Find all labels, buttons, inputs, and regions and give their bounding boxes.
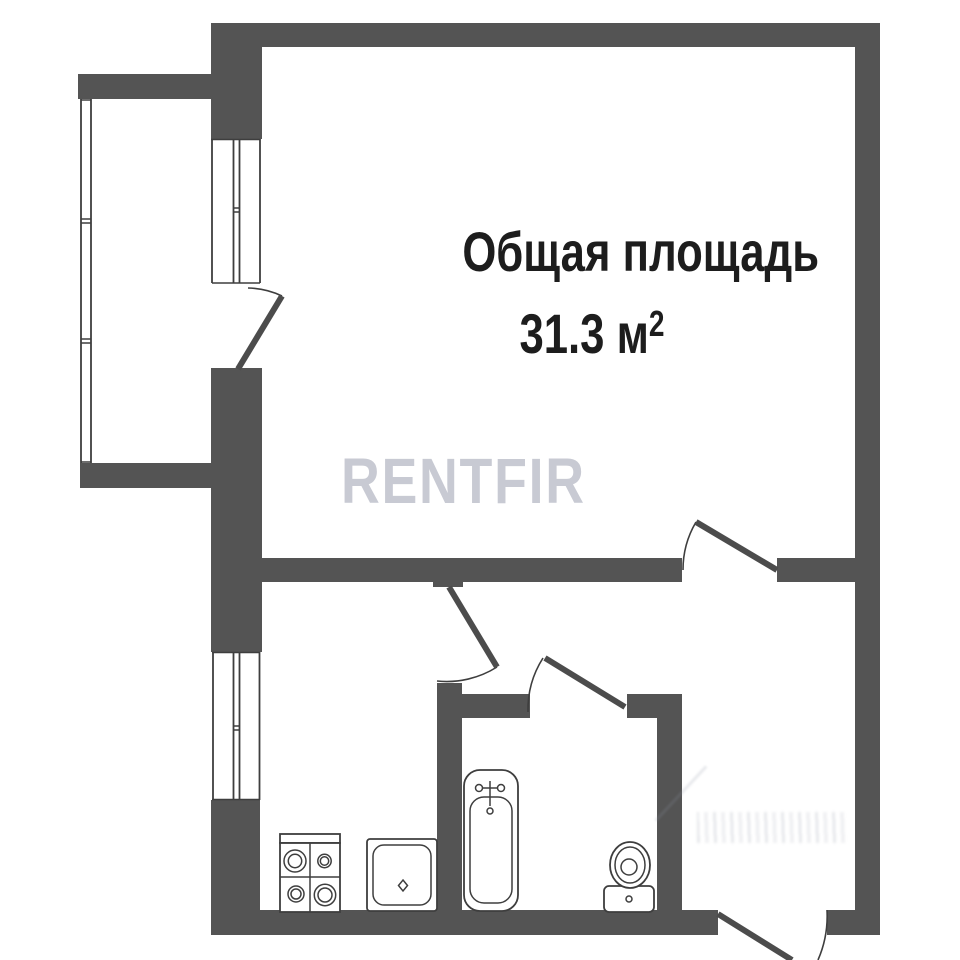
hall-door xyxy=(683,522,777,570)
kitchen-door xyxy=(437,587,497,682)
bathroom-door xyxy=(528,658,625,712)
balcony-wall-bottom-stub xyxy=(80,463,213,488)
wall-interior-main xyxy=(262,558,682,582)
balcony-mullion-lower xyxy=(81,339,91,343)
room-window-glass xyxy=(234,139,240,283)
kitchen-door-swing-arc xyxy=(437,667,497,682)
sink-basin xyxy=(373,845,431,905)
balcony-mullion-upper xyxy=(81,219,91,223)
wall-right xyxy=(855,23,880,935)
faint-watermark-smudge xyxy=(697,812,849,843)
bathtub-faucet-handle-right xyxy=(498,785,505,792)
entry-door-swing-arc xyxy=(818,910,827,960)
area-value-line: 31.3 м2 xyxy=(412,301,772,366)
toilet-icon xyxy=(604,842,654,912)
entry-door xyxy=(718,910,827,960)
bathroom-wall-top-left xyxy=(462,694,530,718)
stove-burner-bl-inner xyxy=(291,889,301,899)
brand-watermark: RENTFIR xyxy=(341,444,586,518)
balcony-wall-top-stub xyxy=(78,74,212,99)
balcony-glazing xyxy=(81,99,91,463)
room-window xyxy=(211,139,260,283)
area-superscript: 2 xyxy=(649,303,665,344)
toilet-bowl-center xyxy=(621,859,637,875)
area-value-text: 31.3 м2 xyxy=(519,301,664,366)
wall-top xyxy=(211,23,880,47)
kitchen-door-hinge-tab xyxy=(433,580,463,587)
stove-burner-br-inner xyxy=(318,888,332,902)
wall-left-lower xyxy=(211,800,260,912)
wall-bottom-right xyxy=(827,910,880,935)
balcony-glass-caps xyxy=(81,100,91,462)
area-title: Общая площадь xyxy=(412,219,772,284)
entry-door-leaf xyxy=(718,914,792,960)
wall-left-middle xyxy=(211,368,262,652)
area-title-text: Общая площадь xyxy=(462,219,819,284)
room-window-caps xyxy=(211,140,260,284)
floor-plan: Общая площадь 31.3 м2 RENTFIR xyxy=(0,0,960,960)
balcony-door-leaf xyxy=(238,296,282,369)
bathtub-drain xyxy=(487,808,493,814)
wall-interior-right xyxy=(777,558,855,582)
toilet-tank-button xyxy=(626,896,632,902)
bathroom-door-leaf xyxy=(545,658,625,707)
balcony-door-swing-arc xyxy=(248,288,282,296)
hall-door-swing-arc xyxy=(683,522,696,570)
wall-top-left-column xyxy=(211,23,262,139)
stove-icon xyxy=(280,834,340,912)
bathtub-faucet-handle-left xyxy=(476,785,483,792)
wall-bottom-left xyxy=(211,910,718,935)
kitchen-door-leaf xyxy=(449,587,497,667)
bathtub-icon xyxy=(464,770,518,911)
balcony-door xyxy=(238,288,282,369)
stove-back-strip xyxy=(280,834,340,843)
area-value: 31.3 xyxy=(519,302,604,365)
hall-door-leaf xyxy=(696,522,777,570)
sink-icon xyxy=(367,839,437,911)
stove-burner-tr-inner xyxy=(320,857,328,865)
stove-burner-tl-inner xyxy=(288,854,301,867)
area-unit: м xyxy=(604,302,648,365)
bathroom-door-swing-arc xyxy=(528,658,543,712)
kitchen-window xyxy=(212,652,260,800)
bathroom-wall-left xyxy=(437,683,462,910)
